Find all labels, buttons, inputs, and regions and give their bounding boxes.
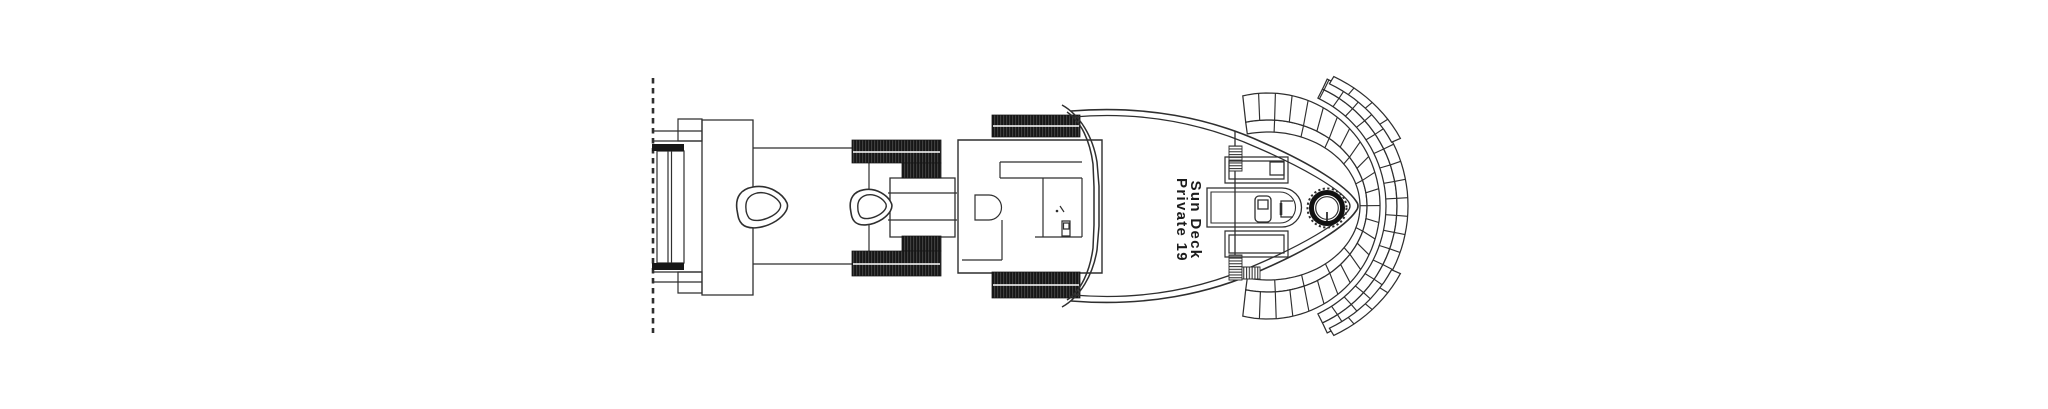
- stairs-bottom-leg: [1242, 267, 1260, 279]
- deck-label-line1: Sun Deck: [1188, 178, 1202, 262]
- funnel-footprint-1: [737, 186, 788, 227]
- ship-deck-plan-drawing: [0, 0, 2048, 409]
- deck-label-line2: Private 19: [1174, 178, 1188, 262]
- spa-platform: [1207, 188, 1302, 227]
- gangway-structure: [652, 119, 702, 293]
- bollard-strip-bottom: [652, 263, 684, 270]
- bollard-strip-top: [652, 144, 684, 151]
- stairs-top: [1229, 146, 1242, 171]
- deck-label: Sun Deck Private 19: [1174, 178, 1202, 262]
- spa-seat: [1281, 201, 1293, 217]
- forward-deckhouse: [958, 140, 1102, 273]
- funnel-footprint-2: [850, 189, 892, 225]
- deck-plan-page: Sun Deck Private 19: [0, 0, 2048, 409]
- mid-structure: [890, 178, 955, 237]
- mast-arch: [975, 195, 1001, 220]
- whirlpool: [1308, 189, 1347, 228]
- stairs-bottom: [1229, 255, 1242, 280]
- side-table: [1270, 162, 1284, 175]
